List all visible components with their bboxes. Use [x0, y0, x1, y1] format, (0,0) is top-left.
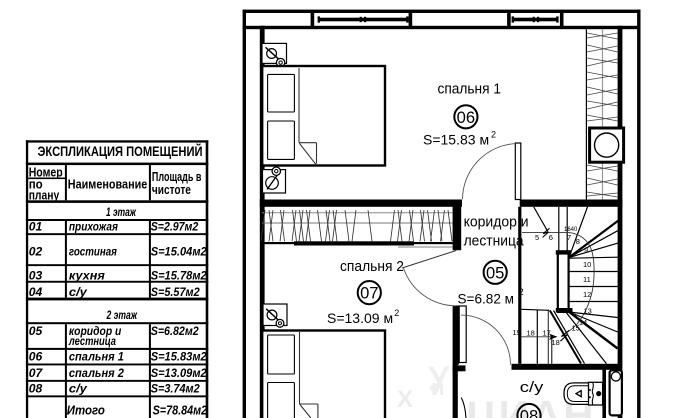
svg-text:2: 2 — [394, 308, 399, 318]
svg-text:17: 17 — [543, 329, 551, 338]
svg-text:6: 6 — [549, 233, 553, 242]
svg-text:08: 08 — [29, 382, 43, 396]
svg-text:07: 07 — [360, 284, 378, 303]
svg-text:02: 02 — [29, 245, 43, 259]
svg-text:S=13.09м2: S=13.09м2 — [151, 366, 207, 380]
svg-text:с/у: с/у — [520, 379, 544, 396]
svg-text:спальня 1: спальня 1 — [69, 350, 124, 364]
svg-text:12: 12 — [583, 290, 591, 299]
svg-text:05: 05 — [486, 263, 504, 282]
svg-text:гостиная: гостиная — [69, 245, 118, 259]
svg-text:Х: Х — [397, 386, 413, 413]
svg-text:10: 10 — [583, 260, 591, 269]
svg-text:прихожая: прихожая — [69, 219, 119, 233]
svg-text:коридор и: коридор и — [464, 213, 529, 230]
svg-text:9: 9 — [584, 245, 588, 254]
svg-text:5: 5 — [535, 233, 539, 242]
svg-text:04: 04 — [29, 285, 43, 299]
svg-text:18: 18 — [552, 338, 560, 347]
svg-text:S=15.78м2: S=15.78м2 — [151, 269, 207, 283]
svg-text:S=15.83 м: S=15.83 м — [423, 132, 489, 148]
svg-text:спальня 2: спальня 2 — [340, 258, 404, 275]
svg-text:14: 14 — [579, 318, 587, 327]
svg-text:спальня 2: спальня 2 — [69, 366, 124, 380]
svg-text:05: 05 — [29, 324, 43, 338]
svg-text:S=15.04м2: S=15.04м2 — [151, 245, 207, 259]
svg-text:11: 11 — [583, 275, 591, 284]
svg-text:7: 7 — [567, 233, 571, 242]
svg-text:06: 06 — [29, 350, 43, 364]
svg-text:S=78.84м2: S=78.84м2 — [153, 403, 208, 418]
svg-text:2: 2 — [519, 287, 524, 297]
svg-text:06: 06 — [457, 108, 475, 127]
svg-text:S=15.83м2: S=15.83м2 — [151, 350, 207, 364]
svg-text:1 этаж: 1 этаж — [106, 207, 136, 219]
svg-text:03: 03 — [29, 269, 43, 283]
svg-text:S=6.82м2: S=6.82м2 — [151, 324, 199, 338]
svg-text:1640: 1640 — [564, 227, 578, 233]
svg-text:S=3.74м2: S=3.74м2 — [151, 382, 200, 396]
svg-text:8: 8 — [576, 237, 580, 246]
svg-text:лестница: лестница — [464, 232, 525, 249]
svg-text:с/у: с/у — [69, 285, 88, 299]
svg-text:13: 13 — [584, 307, 592, 316]
svg-text:с/у: с/у — [69, 382, 88, 396]
svg-text:15: 15 — [572, 324, 580, 333]
svg-text:19: 19 — [513, 328, 521, 337]
svg-text:2 этаж: 2 этаж — [106, 310, 138, 322]
svg-text:01: 01 — [29, 219, 43, 233]
svg-text:2: 2 — [491, 130, 496, 140]
svg-text:08: 08 — [520, 407, 538, 418]
svg-text:кухня: кухня — [69, 269, 106, 283]
svg-text:S=6.82 м: S=6.82 м — [458, 290, 515, 306]
svg-text:плану: плану — [29, 188, 60, 203]
svg-text:S=13.09 м: S=13.09 м — [327, 310, 393, 326]
svg-text:07: 07 — [29, 366, 44, 380]
svg-text:У: У — [428, 360, 450, 398]
svg-text:Наименование: Наименование — [68, 176, 148, 191]
svg-text:S=5.57м2: S=5.57м2 — [151, 285, 200, 299]
svg-text:лестница: лестница — [68, 334, 116, 348]
svg-text:S=2.97м2: S=2.97м2 — [151, 219, 199, 233]
svg-text:спальня 1: спальня 1 — [438, 80, 502, 97]
svg-text:чистоте: чистоте — [152, 182, 191, 197]
svg-text:ЭКСПЛИКАЦИЯ ПОМЕЩЕНИЙ: ЭКСПЛИКАЦИЯ ПОМЕЩЕНИЙ — [38, 144, 203, 159]
svg-text:18: 18 — [527, 329, 535, 338]
svg-text:Итого: Итого — [67, 403, 105, 418]
